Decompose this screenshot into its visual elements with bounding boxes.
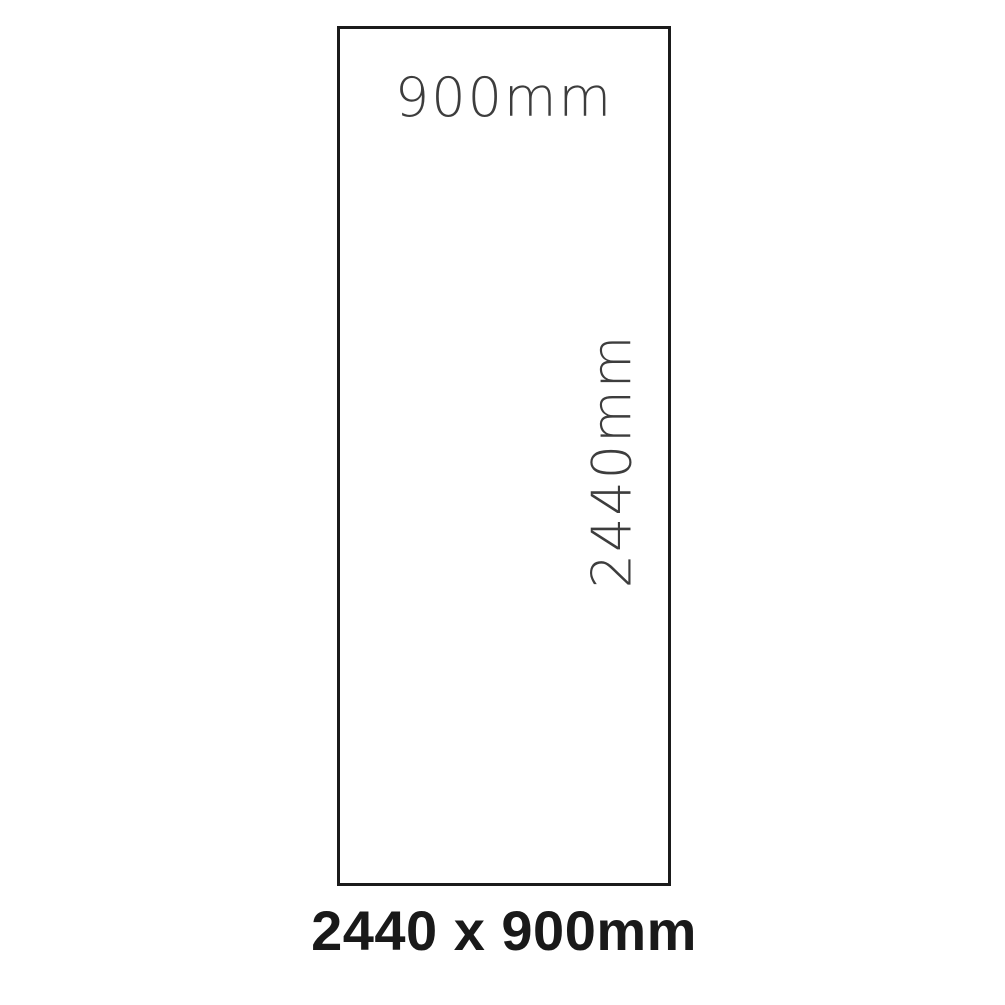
dimension-diagram: 900mm 2440mm 2440 x 900mm <box>0 0 1005 1005</box>
height-dimension-label: 2440mm <box>581 334 644 589</box>
overall-dimensions-caption: 2440 x 900mm <box>304 898 704 963</box>
width-dimension-label: 900mm <box>337 66 671 129</box>
